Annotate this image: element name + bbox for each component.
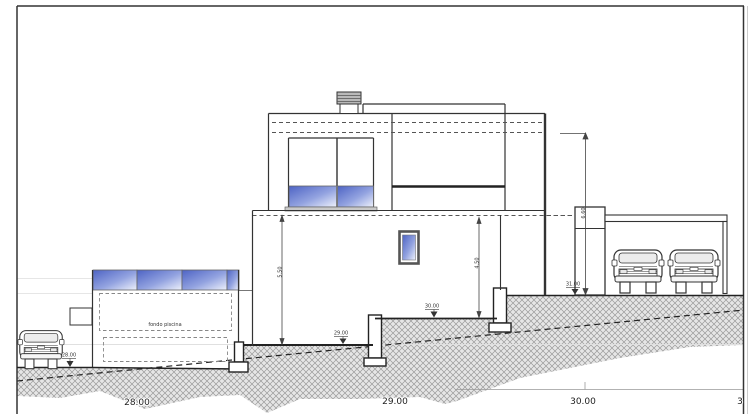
baseline-label-29: 29.00 [382, 397, 408, 407]
reference-lines [17, 279, 92, 294]
pool-water-pane [182, 270, 227, 290]
spot-elevation-28-label: 28.00 [62, 353, 76, 359]
baseline-label-28: 28.00 [124, 398, 150, 408]
upper-window-glass [289, 186, 337, 207]
pool-section [70, 270, 253, 369]
pool-water-pane [137, 270, 182, 290]
dim-garage-label: 6.60 [581, 207, 587, 218]
pool-skimmer-box [70, 308, 92, 325]
architectural-section-drawing: 5.50 4.50 6.60 28.00 29.00 30.00 [0, 0, 750, 414]
pier [369, 315, 382, 358]
baseline-label-30: 30.00 [570, 397, 596, 407]
upper-window [285, 138, 377, 211]
ground-window-glass [403, 235, 416, 260]
spot-elevation-28: 28.00 [62, 353, 76, 368]
pier-footing [489, 323, 511, 332]
dimension-right: 4.50 [475, 218, 482, 318]
dimension-left: 5.50 [278, 216, 285, 345]
dim-right-label: 4.50 [475, 257, 481, 268]
pier-footing [364, 358, 386, 366]
pier [235, 342, 244, 362]
car-icon [612, 250, 664, 293]
upper-window-glass [338, 186, 374, 207]
car-icon [18, 331, 64, 369]
spot-elevation-29-label: 29.00 [334, 331, 348, 337]
pool-water-pane [227, 270, 239, 290]
garage-right-wall [723, 222, 727, 294]
baseline-label-31: 3 [737, 397, 743, 407]
garage-roof-slab [605, 215, 727, 222]
ground-window [400, 232, 419, 264]
pier-footing [229, 362, 248, 372]
chimney [337, 92, 361, 114]
spot-elevation-31-label: 31.00 [566, 282, 580, 288]
pool-bottom-label: fondo piscina [148, 322, 181, 328]
spot-elevation-30-label: 30.00 [425, 304, 439, 310]
pool-water-pane [93, 270, 137, 290]
spot-elevation-30: 30.00 [425, 304, 439, 318]
spot-elevation-29: 29.00 [334, 331, 348, 345]
section-canvas: 5.50 4.50 6.60 28.00 29.00 30.00 [0, 0, 750, 414]
dim-left-label: 5.50 [278, 266, 284, 277]
car-icon [668, 250, 720, 293]
pool-footing-hidden-outline [104, 338, 228, 362]
